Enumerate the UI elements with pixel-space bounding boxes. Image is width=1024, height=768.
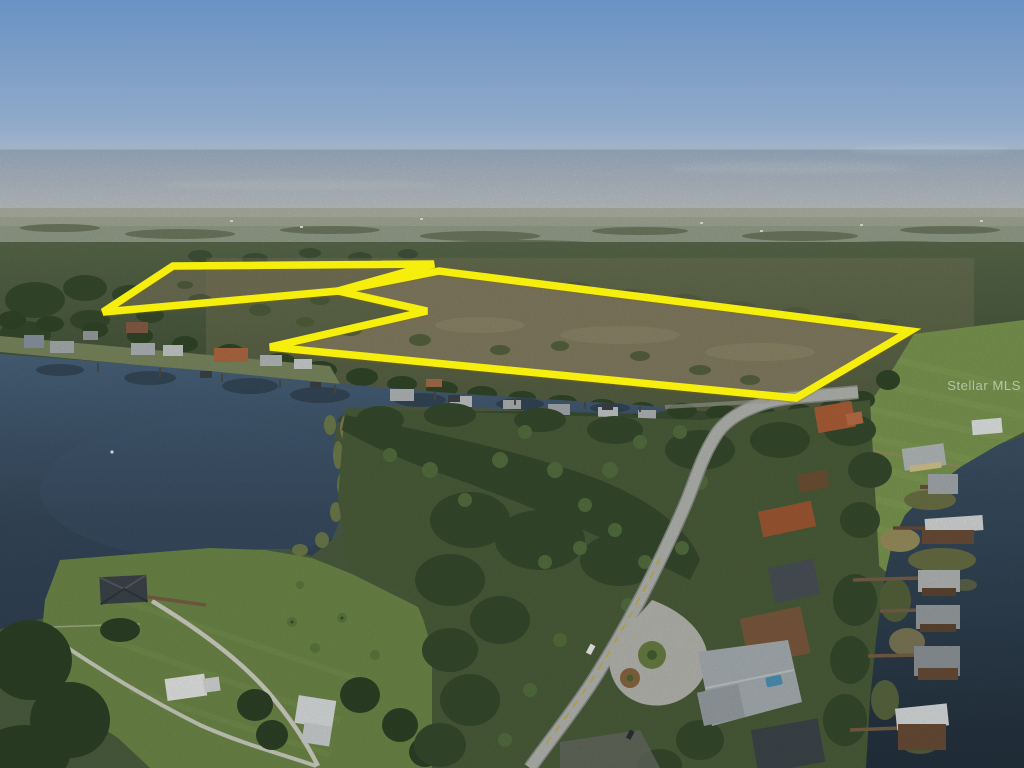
aerial-listing-photo: Stellar MLS bbox=[0, 0, 1024, 768]
watermark: Stellar MLS bbox=[947, 378, 1021, 393]
photo-grain bbox=[0, 206, 1024, 768]
aerial-photo-canvas: Stellar MLS bbox=[0, 0, 1024, 768]
sky bbox=[0, 0, 1024, 218]
